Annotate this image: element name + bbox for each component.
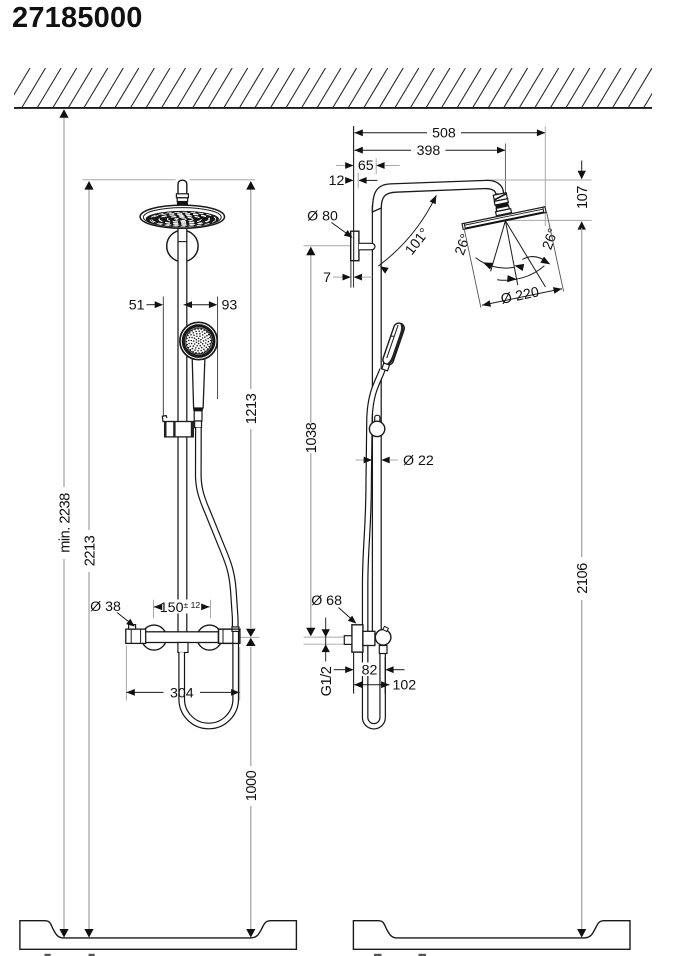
- svg-text:7: 7: [323, 270, 331, 286]
- svg-text:65: 65: [358, 158, 374, 174]
- svg-text:102: 102: [393, 678, 417, 694]
- svg-text:min. 2238: min. 2238: [57, 493, 73, 553]
- svg-text:1000: 1000: [244, 770, 260, 801]
- svg-text:1213: 1213: [244, 393, 260, 424]
- svg-text:Ø 38: Ø 38: [90, 599, 121, 615]
- svg-text:51: 51: [129, 298, 145, 314]
- svg-text:27185000: 27185000: [12, 2, 143, 34]
- svg-text:508: 508: [432, 126, 456, 142]
- svg-text:Ø 68: Ø 68: [311, 593, 342, 609]
- svg-text:398: 398: [417, 143, 441, 159]
- svg-text:1038: 1038: [304, 422, 320, 453]
- svg-text:2213: 2213: [82, 535, 98, 566]
- svg-text:304: 304: [170, 685, 194, 701]
- svg-text:107: 107: [575, 186, 591, 209]
- svg-text:Ø 22: Ø 22: [403, 453, 434, 469]
- svg-text:82: 82: [362, 663, 378, 679]
- svg-text:G1/2: G1/2: [319, 666, 335, 696]
- svg-text:12: 12: [329, 173, 345, 189]
- svg-text:93: 93: [222, 298, 238, 314]
- svg-text:2106: 2106: [575, 563, 591, 594]
- svg-text:Ø 80: Ø 80: [307, 208, 338, 224]
